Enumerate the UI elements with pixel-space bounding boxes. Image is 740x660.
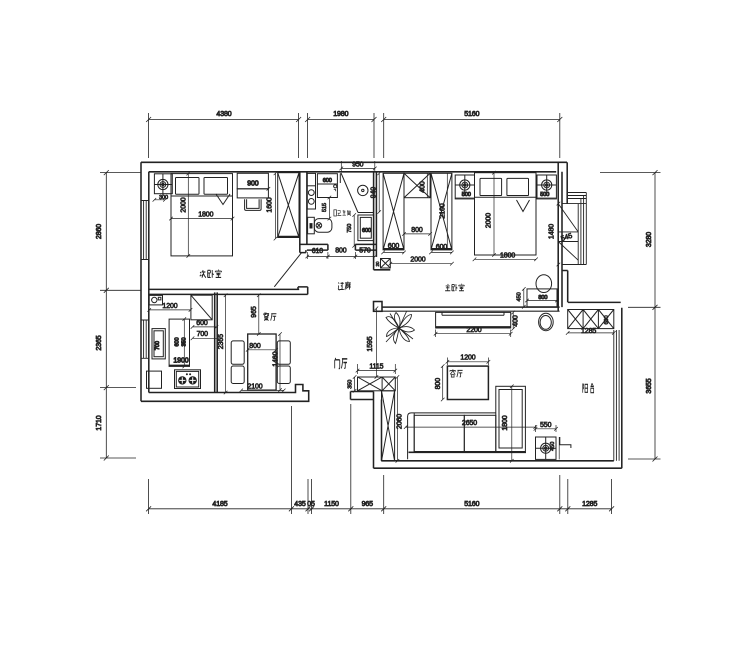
svg-text:2000: 2000 [410,256,425,263]
svg-text:550: 550 [540,422,552,429]
svg-text:1595: 1595 [367,336,374,351]
svg-text:700: 700 [197,331,209,338]
svg-text:900: 900 [247,181,259,188]
svg-text:600: 600 [196,320,208,327]
svg-text:3280: 3280 [646,232,653,247]
svg-text:300: 300 [159,195,168,201]
svg-text:600: 600 [362,228,371,234]
svg-text:500: 500 [462,192,471,198]
svg-text:450: 450 [517,292,523,301]
svg-text:1200: 1200 [162,303,177,310]
svg-text:800: 800 [435,378,442,390]
svg-text:2060: 2060 [396,414,403,429]
svg-text:1285: 1285 [581,328,596,335]
svg-text:4185: 4185 [212,501,227,508]
svg-text:1480: 1480 [549,224,556,239]
svg-text:450: 450 [550,442,556,451]
svg-text:800: 800 [335,247,347,254]
svg-text:610: 610 [312,248,324,255]
svg-text:700: 700 [155,341,161,350]
svg-text:950: 950 [352,161,364,168]
svg-text:800: 800 [538,295,547,301]
svg-text:2100: 2100 [247,383,262,390]
svg-text:400: 400 [420,181,427,193]
svg-text:350: 350 [181,337,187,346]
svg-text:1980: 1980 [333,111,348,118]
svg-text:1115: 1115 [369,363,383,370]
svg-text:1285: 1285 [582,501,597,508]
svg-text:400: 400 [512,315,519,327]
svg-text:500: 500 [540,192,549,198]
svg-text:515: 515 [322,203,328,212]
svg-text:570: 570 [359,248,371,255]
svg-text:800: 800 [249,343,261,350]
svg-text:1710: 1710 [96,415,103,430]
svg-text:600: 600 [436,244,448,251]
svg-text:1900: 1900 [173,357,188,364]
svg-text:600: 600 [323,178,332,184]
svg-text:940: 940 [371,187,378,199]
svg-text:1200: 1200 [460,355,475,362]
svg-text:435: 435 [294,501,306,508]
svg-text:2200: 2200 [466,327,481,334]
svg-text:5160: 5160 [464,111,479,118]
svg-text:1600: 1600 [266,197,273,212]
svg-text:2100: 2100 [439,203,446,218]
svg-text:350: 350 [348,380,354,389]
svg-text:2000: 2000 [485,213,492,228]
svg-text:20: 20 [375,261,380,267]
svg-text:965: 965 [362,501,374,508]
svg-text:600: 600 [604,315,610,324]
svg-text:1800: 1800 [198,212,213,219]
svg-text:1800: 1800 [500,252,515,259]
svg-text:800: 800 [411,227,423,234]
svg-text:1460: 1460 [273,351,280,366]
svg-text:4380: 4380 [216,111,231,118]
svg-text:1150: 1150 [324,501,339,508]
svg-text:2860: 2860 [96,224,103,239]
svg-text:2650: 2650 [462,420,477,427]
svg-text:2365: 2365 [218,334,225,349]
svg-text:965: 965 [251,306,258,318]
svg-text:2365: 2365 [96,335,103,350]
svg-text:05: 05 [307,501,315,508]
svg-text:2000: 2000 [181,197,188,212]
svg-text:750: 750 [347,224,353,233]
svg-text:3655: 3655 [646,378,653,393]
svg-text:600: 600 [175,337,181,346]
svg-text:5160: 5160 [464,501,479,508]
svg-text:1800: 1800 [502,415,509,430]
svg-text:600: 600 [388,243,400,250]
